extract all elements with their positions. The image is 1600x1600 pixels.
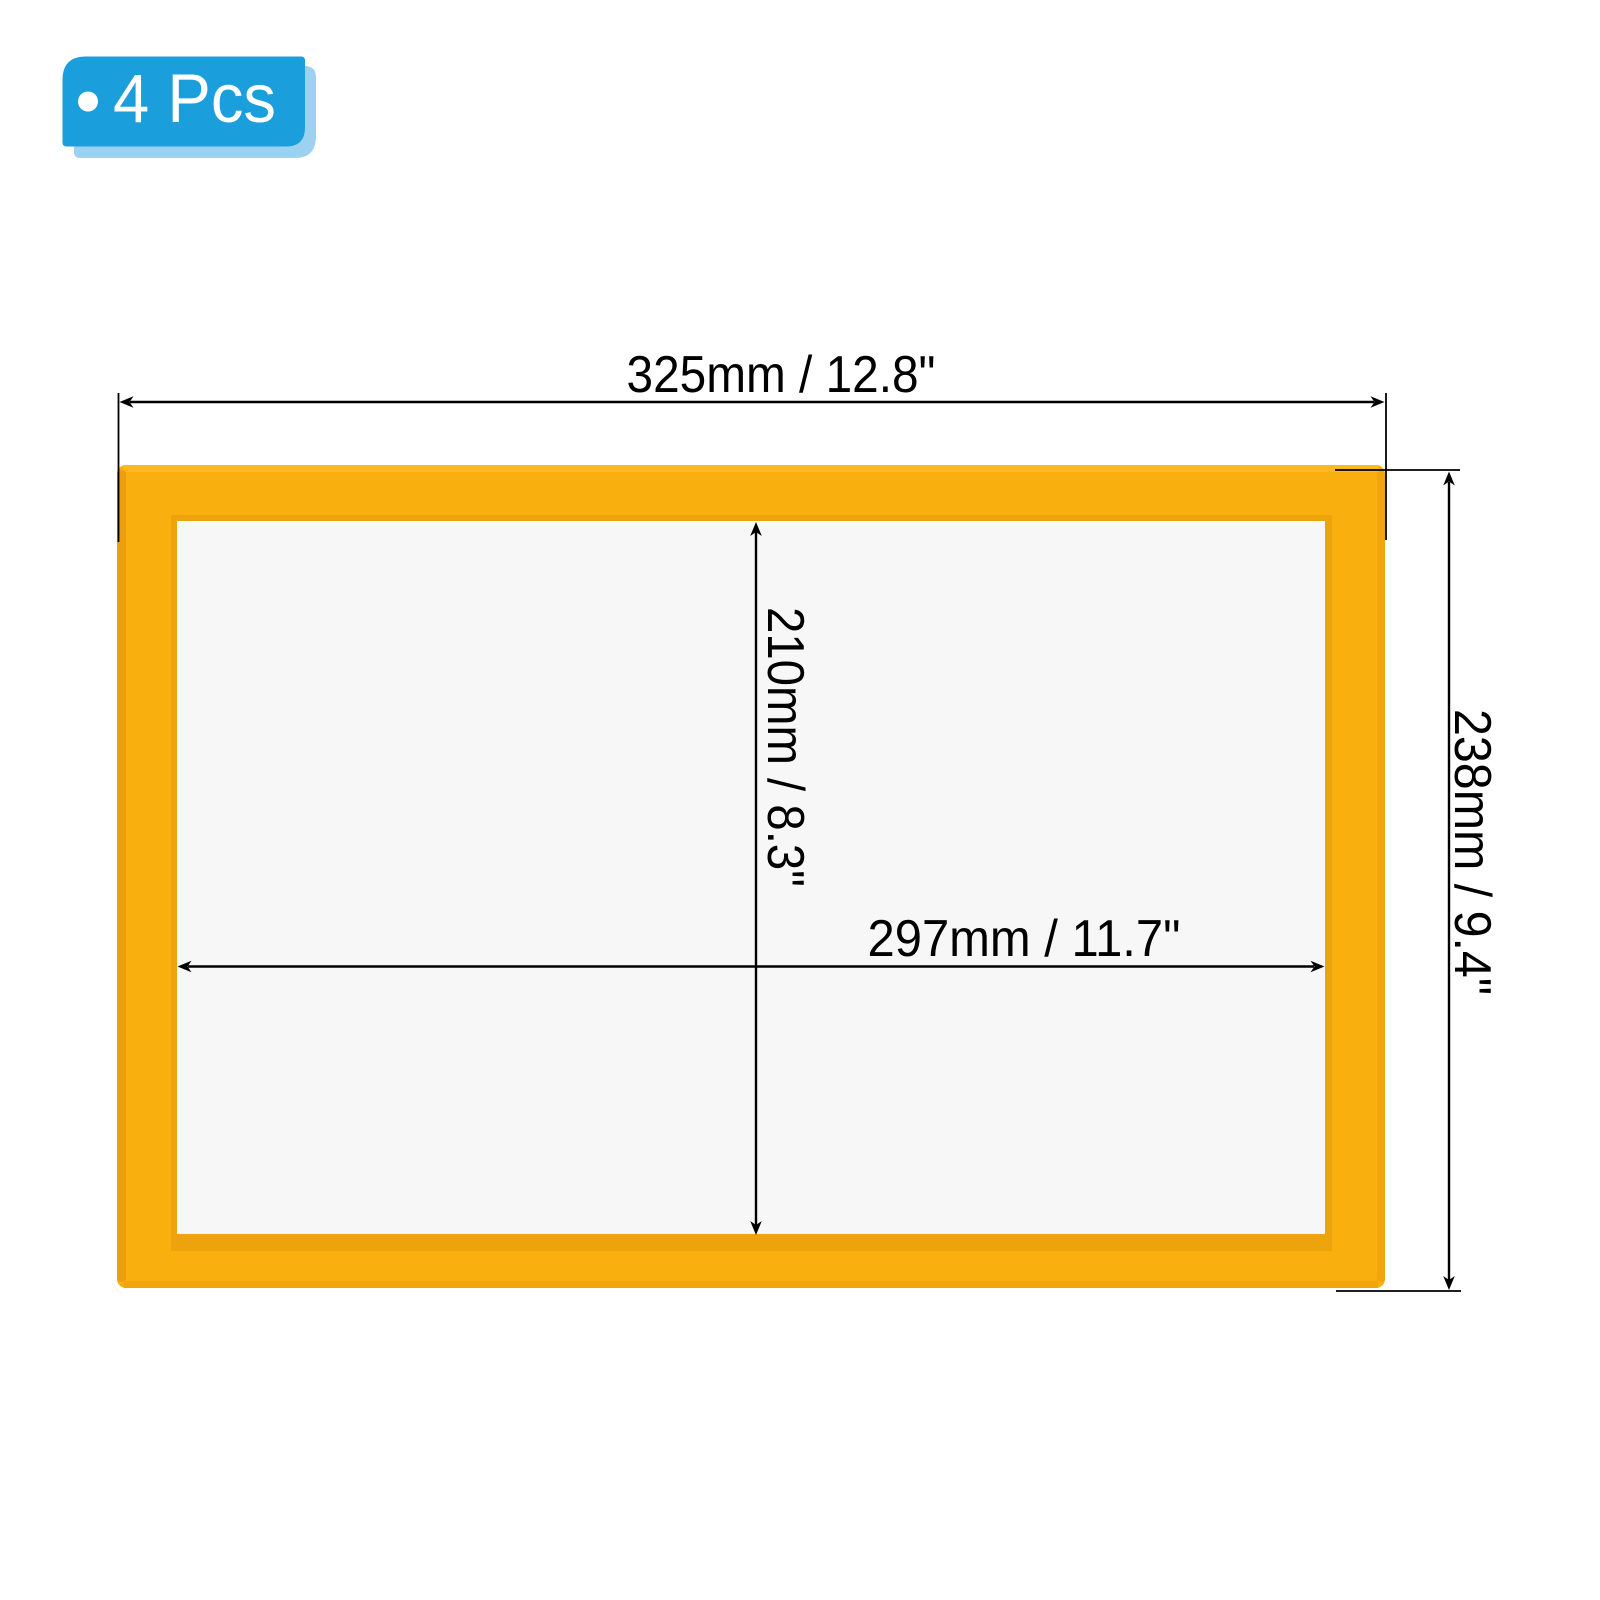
svg-text:325mm / 12.8": 325mm / 12.8" bbox=[627, 346, 936, 404]
svg-text:238mm / 9.4": 238mm / 9.4" bbox=[1443, 709, 1501, 995]
svg-text:4 Pcs: 4 Pcs bbox=[113, 60, 276, 137]
svg-text:297mm / 11.7": 297mm / 11.7" bbox=[868, 910, 1181, 968]
svg-text:210mm / 8.3": 210mm / 8.3" bbox=[756, 607, 814, 887]
